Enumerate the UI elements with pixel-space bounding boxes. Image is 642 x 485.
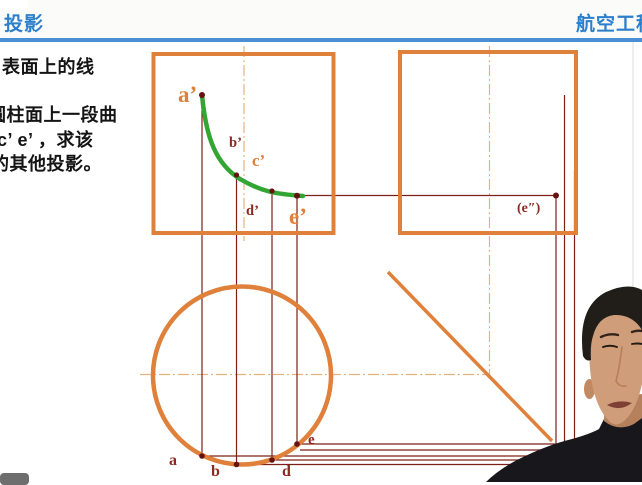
header-bar: 投影 航空工程 — [0, 0, 642, 38]
miter-line-45 — [388, 272, 552, 441]
label-a-top: a — [169, 452, 177, 469]
header-rule — [0, 38, 642, 42]
label-c-front: c’ — [252, 151, 265, 170]
projection-drawing: a’ b’ c’ d’ e’ (e″) a b d e — [0, 0, 642, 482]
label-a-front: a’ — [178, 82, 197, 107]
point-dots — [199, 92, 559, 467]
slide-body-line-3: 的其他投影。 — [0, 150, 102, 176]
header-title-left: 投影 — [4, 9, 44, 36]
label-b-top: b — [211, 463, 220, 480]
label-e-side: (e″) — [517, 201, 541, 216]
side-view-rect — [400, 52, 576, 233]
label-d-front: d’ — [246, 203, 259, 219]
slide-heading: 表面上的线 — [2, 53, 95, 79]
curve-ae-front — [202, 95, 303, 196]
label-b-front: b’ — [229, 135, 242, 151]
label-e-top: e — [308, 432, 315, 448]
label-d-top: d — [282, 463, 291, 480]
header-notch — [0, 0, 28, 9]
header-title-right: 航空工程 — [576, 9, 642, 36]
label-e-front: e’ — [289, 204, 307, 229]
corner-control-button[interactable] — [0, 473, 29, 485]
top-view-circle — [153, 287, 331, 465]
slide-body-line-1: 圆柱面上一段曲 — [0, 101, 118, 127]
slide-body-line-2: c’ e’ ，求该 — [0, 126, 94, 152]
